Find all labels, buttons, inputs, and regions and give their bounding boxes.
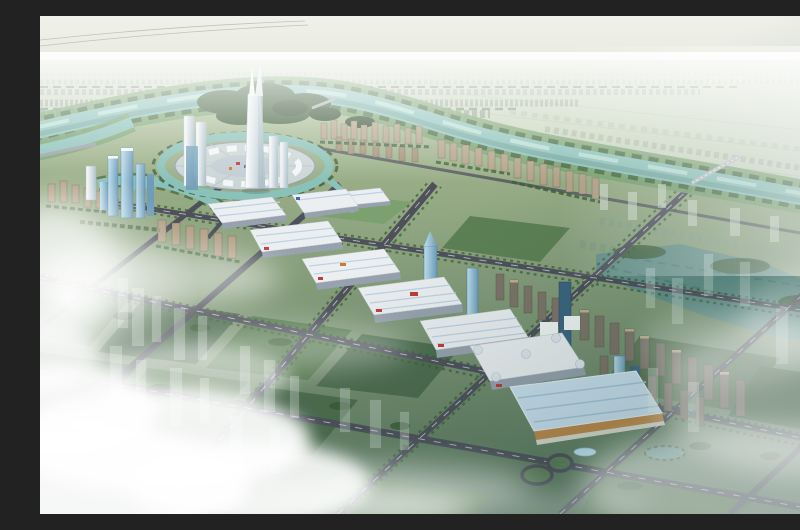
east-haze — [560, 46, 800, 276]
city-masterplan-rendering: aerial-architectural-rendering — [40, 16, 800, 514]
scene-canvas: aerial-architectural-rendering — [40, 16, 800, 514]
cloud-wisps-part — [150, 322, 410, 370]
cloud-wisps-part — [40, 248, 280, 308]
